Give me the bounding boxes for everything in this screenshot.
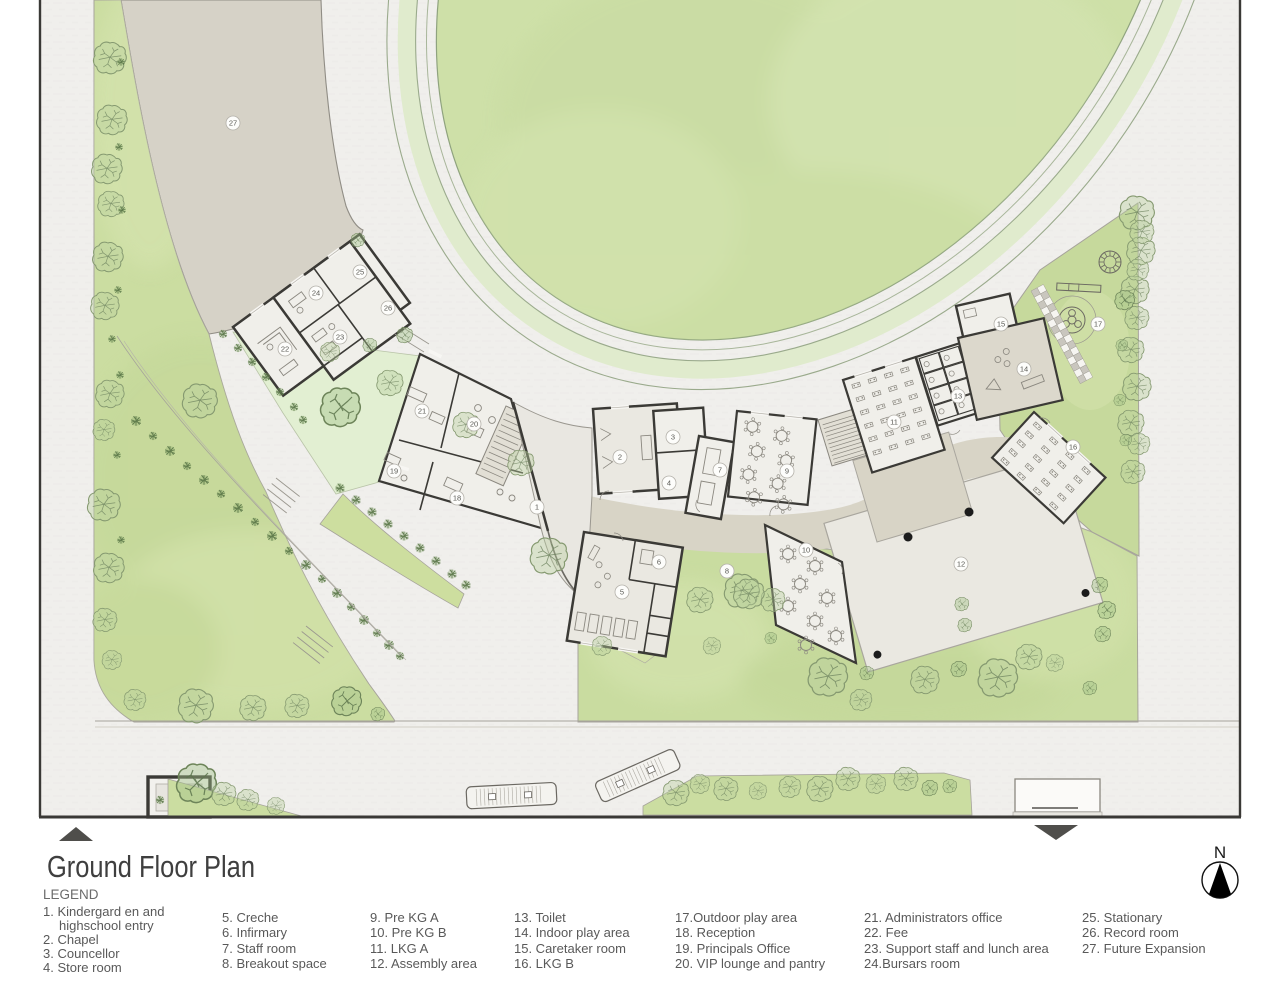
svg-text:19. Principals Office: 19. Principals Office — [675, 941, 790, 956]
svg-text:24: 24 — [312, 289, 320, 298]
svg-text:20. VIP lounge and pantry: 20. VIP lounge and pantry — [675, 956, 826, 971]
svg-text:27: 27 — [229, 119, 237, 128]
svg-text:12: 12 — [957, 560, 965, 569]
svg-text:17: 17 — [1094, 320, 1102, 329]
svg-text:13. Toilet: 13. Toilet — [514, 910, 566, 925]
svg-text:15. Caretaker room: 15. Caretaker room — [514, 941, 626, 956]
svg-text:7: 7 — [718, 466, 722, 475]
svg-text:15: 15 — [997, 320, 1005, 329]
svg-text:10: 10 — [802, 546, 810, 555]
svg-text:3. Councellor: 3. Councellor — [43, 946, 120, 961]
svg-text:1: 1 — [535, 503, 539, 512]
svg-text:23: 23 — [336, 333, 344, 342]
svg-text:22: 22 — [281, 345, 289, 354]
svg-text:8. Breakout space: 8. Breakout space — [222, 956, 327, 971]
svg-text:16: 16 — [1069, 443, 1077, 452]
svg-text:6. Infirmary: 6. Infirmary — [222, 925, 288, 940]
svg-text:23. Support staff and lunch ar: 23. Support staff and lunch area — [864, 941, 1050, 956]
svg-text:11: 11 — [890, 418, 898, 427]
svg-text:16. LKG B: 16. LKG B — [514, 956, 574, 971]
svg-text:20: 20 — [470, 420, 478, 429]
svg-text:8: 8 — [725, 567, 729, 576]
svg-text:13: 13 — [954, 392, 962, 401]
svg-text:27. Future Expansion: 27. Future Expansion — [1082, 941, 1206, 956]
svg-text:22. Fee: 22. Fee — [864, 925, 908, 940]
svg-text:26: 26 — [384, 304, 392, 313]
svg-text:21. Administrators office: 21. Administrators office — [864, 910, 1003, 925]
svg-text:25: 25 — [356, 268, 364, 277]
svg-text:17.Outdoor play area: 17.Outdoor play area — [675, 910, 798, 925]
svg-text:24.Bursars room: 24.Bursars room — [864, 956, 960, 971]
svg-text:12. Assembly area: 12. Assembly area — [370, 956, 478, 971]
svg-text:18. Reception: 18. Reception — [675, 925, 755, 940]
svg-text:14. Indoor play area: 14. Indoor play area — [514, 925, 630, 940]
svg-text:4: 4 — [667, 479, 671, 488]
svg-text:21: 21 — [418, 407, 426, 416]
svg-text:Ground Floor Plan: Ground Floor Plan — [47, 849, 255, 884]
svg-text:6: 6 — [657, 558, 661, 567]
svg-text:9. Pre KG A: 9. Pre KG A — [370, 910, 439, 925]
svg-text:N: N — [1214, 843, 1226, 862]
svg-text:10. Pre KG B: 10. Pre KG B — [370, 925, 447, 940]
svg-text:2. Chapel: 2. Chapel — [43, 932, 99, 947]
svg-text:9: 9 — [785, 467, 789, 476]
svg-text:4. Store room: 4. Store room — [43, 960, 122, 975]
svg-text:3: 3 — [671, 433, 675, 442]
svg-text:7. Staff room: 7. Staff room — [222, 941, 296, 956]
svg-text:26. Record room: 26. Record room — [1082, 925, 1179, 940]
svg-text:5: 5 — [620, 588, 624, 597]
svg-text:2: 2 — [618, 453, 622, 462]
svg-text:1. Kindergard en and: 1. Kindergard en and — [43, 904, 164, 919]
svg-text:18: 18 — [453, 494, 461, 503]
svg-text:14: 14 — [1020, 365, 1028, 374]
svg-text:19: 19 — [390, 467, 398, 476]
svg-text:highschool entry: highschool entry — [59, 918, 154, 933]
svg-text:LEGEND: LEGEND — [43, 887, 99, 902]
svg-text:11. LKG A: 11. LKG A — [370, 941, 429, 956]
svg-text:5. Creche: 5. Creche — [222, 910, 278, 925]
svg-text:25. Stationary: 25. Stationary — [1082, 910, 1163, 925]
